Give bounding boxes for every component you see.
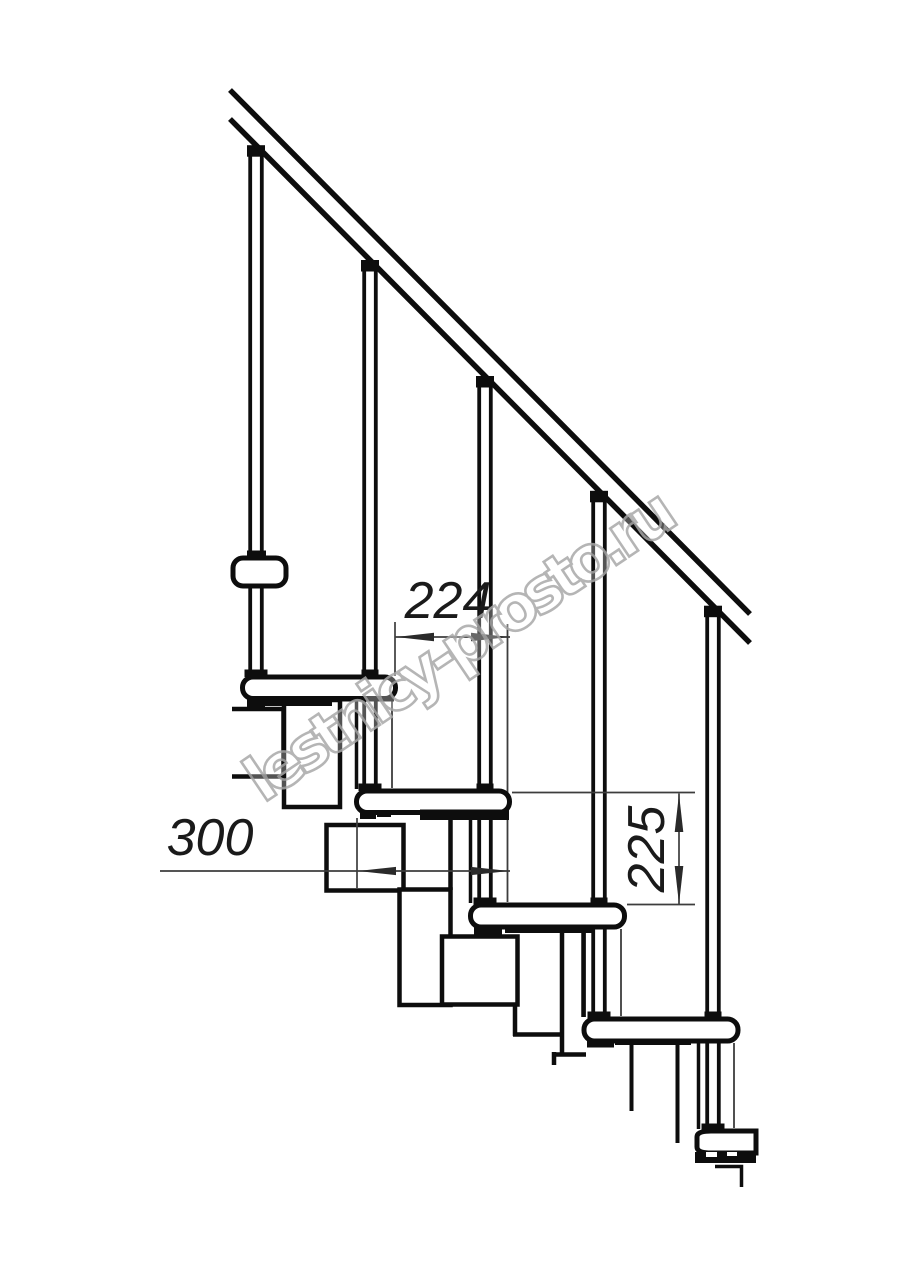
- module-leg-3: [513, 926, 586, 1065]
- module-box-2: [327, 825, 404, 891]
- tread-underside-plate: [474, 926, 502, 936]
- mount-tab: [247, 704, 265, 710]
- tread-2: [357, 791, 510, 813]
- mount-tab: [377, 810, 391, 817]
- dimension-value-300: 300: [167, 809, 254, 867]
- tread-3: [471, 905, 625, 927]
- baluster-5: [704, 606, 722, 1131]
- tread-4: [584, 1019, 738, 1041]
- baluster-collar: [245, 670, 268, 678]
- staircase-technical-drawing: 224 300 225 lestnicy-prosto.ru: [0, 0, 914, 1280]
- mount-tab: [360, 810, 376, 819]
- baluster-collar: [591, 898, 608, 906]
- tread-underside-plate: [615, 1040, 691, 1046]
- baluster-collar: [588, 1012, 611, 1020]
- tread-underside-plate: [420, 810, 509, 821]
- tread-underside-plate: [695, 1152, 756, 1163]
- baluster-collar: [705, 1012, 722, 1020]
- module-leg-4-faded: [632, 1045, 678, 1143]
- baluster-collar: [359, 784, 382, 792]
- tread-underside-plate: [505, 927, 594, 933]
- handrail-bracket: [233, 558, 286, 586]
- baluster-collar: [247, 551, 266, 559]
- baluster-collar: [702, 1124, 725, 1132]
- drawing-canvas: 224 300 225 lestnicy-prosto.ru: [0, 0, 914, 1280]
- dimension-value-225: 225: [618, 805, 676, 894]
- baluster-collar: [477, 784, 494, 792]
- watermark-text: lestnicy-prosto.ru: [231, 476, 685, 816]
- tread-5-partial: [697, 1131, 756, 1153]
- bottom-step-outline: [715, 1167, 742, 1188]
- module-box-3: [442, 937, 518, 1005]
- tread-underside-plate: [587, 1039, 614, 1048]
- baluster-collar: [474, 898, 497, 906]
- baluster-1: [247, 145, 265, 677]
